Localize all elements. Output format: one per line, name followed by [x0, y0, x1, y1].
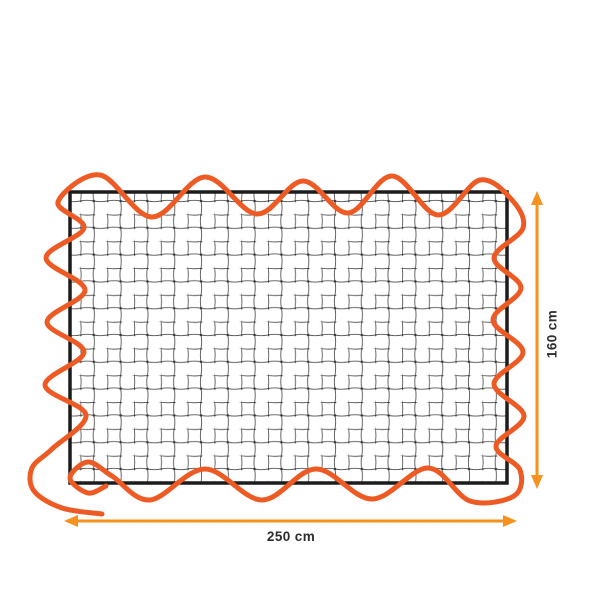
arrow-down-head-icon: [531, 475, 543, 489]
height-dimension-label: 160 cm: [545, 310, 560, 358]
height-dimension-arrow: [531, 191, 543, 489]
width-dimension-label: 250 cm: [75, 529, 507, 544]
arrow-right-head-icon: [503, 515, 517, 527]
arrow-left-head-icon: [64, 515, 78, 527]
cargo-net-product-diagram: 250 cm 160 cm: [0, 0, 600, 600]
net-illustration: [0, 0, 600, 600]
width-dimension-arrow: [64, 515, 517, 527]
arrow-up-head-icon: [531, 191, 543, 205]
net-mesh: [71, 193, 506, 482]
